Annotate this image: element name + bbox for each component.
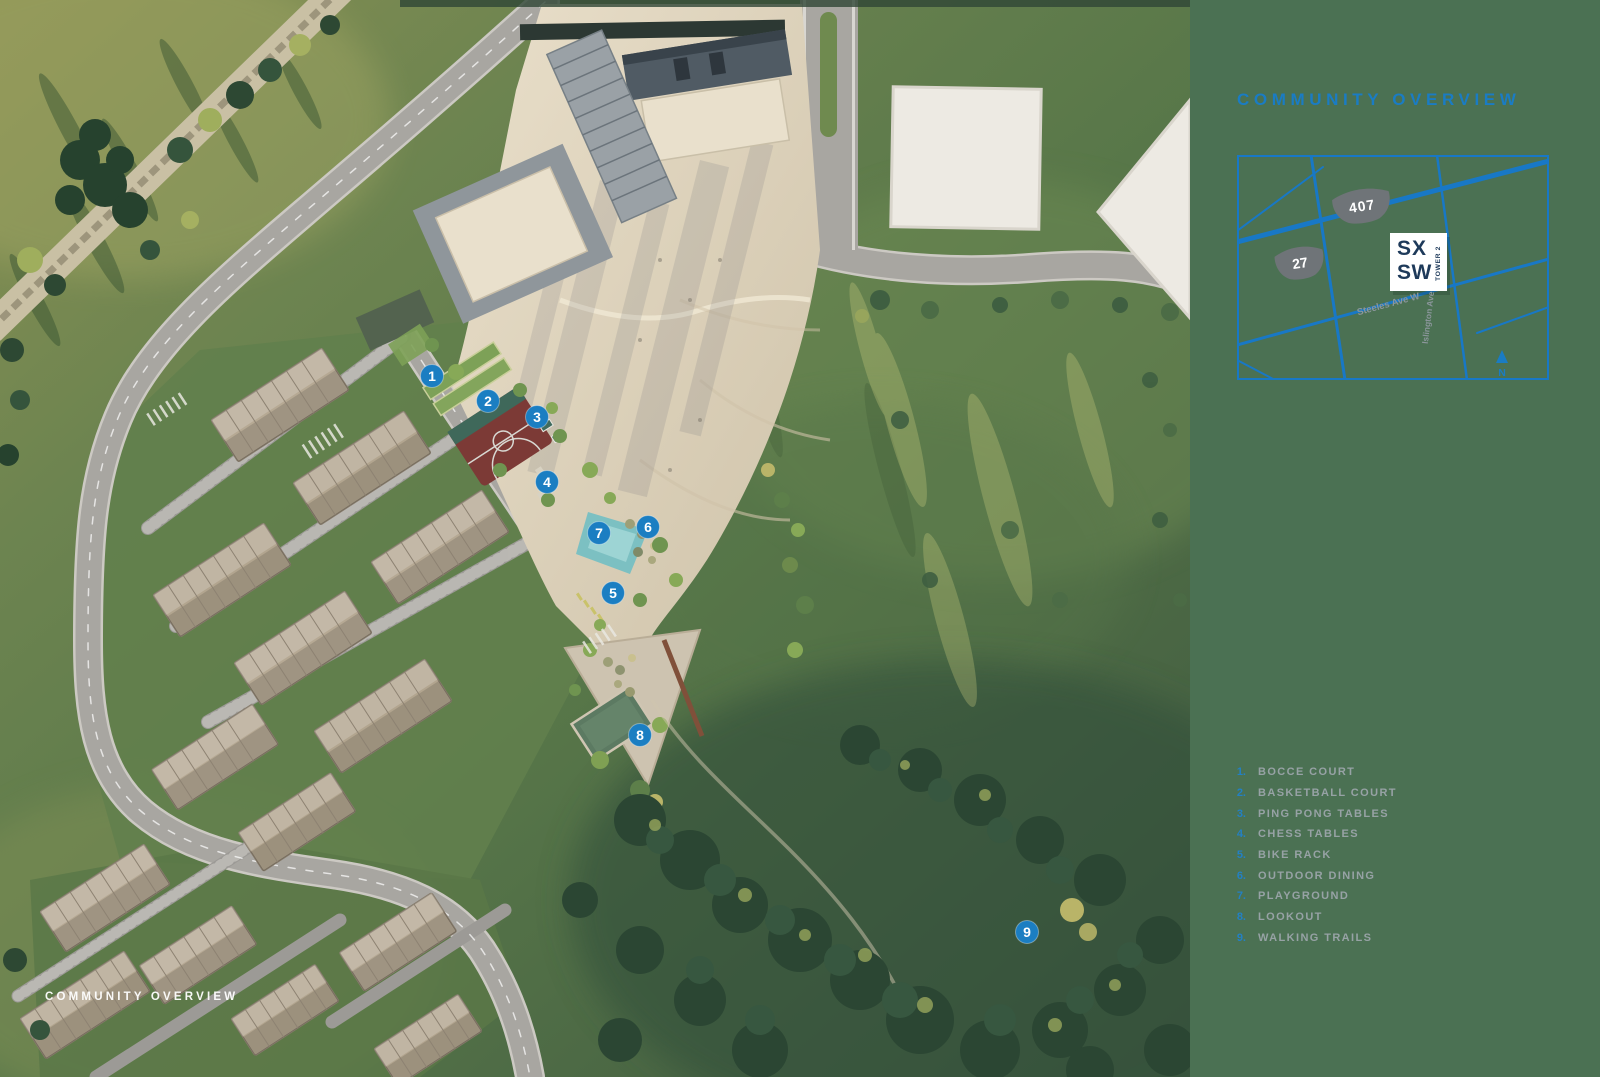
- svg-text:N: N: [1498, 367, 1506, 379]
- svg-text:1: 1: [428, 368, 436, 384]
- legend-item-outdoor-dining: 6.OUTDOOR DINING: [1230, 865, 1397, 886]
- legend-item-ping-pong-tables: 3.PING PONG TABLES: [1230, 803, 1397, 824]
- compass-north-icon: N: [1496, 350, 1508, 379]
- highway-407-shield: 407: [1331, 185, 1393, 227]
- street-label-islington: Islington Ave: [1420, 291, 1436, 345]
- map-marker-8-lookout[interactable]: 8: [629, 724, 652, 747]
- map-marker-5-bike-rack[interactable]: 5: [602, 582, 625, 605]
- map-marker-2-basketball-court[interactable]: 2: [477, 390, 500, 413]
- map-marker-7-playground[interactable]: 7: [588, 522, 611, 545]
- map-marker-1-bocce-court[interactable]: 1: [421, 365, 444, 388]
- legend-item-playground: 7.PLAYGROUND: [1230, 886, 1397, 907]
- page-title: COMMUNITY OVERVIEW: [1237, 90, 1520, 110]
- legend-item-bike-rack: 5.BIKE RACK: [1230, 845, 1397, 866]
- legend-item-chess-tables: 4.CHESS TABLES: [1230, 824, 1397, 845]
- legend-item-basketball-court: 2.BASKETBALL COURT: [1230, 783, 1397, 804]
- info-panel: COMMUNITY OVERVIEW 407 27: [1190, 0, 1600, 1077]
- svg-text:8: 8: [636, 727, 644, 743]
- svg-text:5: 5: [609, 585, 617, 601]
- svg-text:27: 27: [1291, 254, 1309, 272]
- street-label-steeles: Steeles Ave W: [1356, 291, 1421, 318]
- sxsw-tower2-logo: SX SW TOWER 2: [1390, 233, 1450, 295]
- map-marker-3-ping-pong[interactable]: 3: [526, 406, 549, 429]
- page: 1 2 3 4 5 6 7 8 9 COMMUNITY OVERVIEW COM…: [0, 0, 1600, 1077]
- aerial-rendering: 1 2 3 4 5 6 7 8 9: [0, 0, 1190, 1077]
- svg-text:6: 6: [644, 519, 652, 535]
- aerial-caption: COMMUNITY OVERVIEW: [45, 991, 238, 1003]
- map-marker-6-outdoor-dining[interactable]: 6: [637, 516, 660, 539]
- svg-text:SW: SW: [1397, 261, 1432, 284]
- legend-item-lookout: 8.LOOKOUT: [1230, 907, 1397, 928]
- location-minimap: 407 27 SX SW TOWER 2 Steeles Ave W Islin…: [1237, 155, 1549, 380]
- svg-text:9: 9: [1023, 924, 1031, 940]
- svg-text:2: 2: [484, 393, 492, 409]
- legend-item-bocce-court: 1.BOCCE COURT: [1230, 762, 1397, 783]
- svg-text:TOWER 2: TOWER 2: [1435, 246, 1442, 281]
- amenity-legend: 1.BOCCE COURT 2.BASKETBALL COURT 3.PING …: [1230, 762, 1397, 948]
- map-marker-4-chess-tables[interactable]: 4: [536, 471, 559, 494]
- svg-text:4: 4: [543, 474, 551, 490]
- svg-text:7: 7: [595, 525, 603, 541]
- highway-27-shield: 27: [1273, 243, 1326, 282]
- site-plan-aerial: 1 2 3 4 5 6 7 8 9 COMMUNITY OVERVIEW: [0, 0, 1190, 1077]
- svg-text:SX: SX: [1397, 237, 1427, 260]
- legend-item-walking-trails: 9.WALKING TRAILS: [1230, 928, 1397, 949]
- svg-text:3: 3: [533, 409, 541, 425]
- map-marker-9-walking-trails[interactable]: 9: [1016, 921, 1039, 944]
